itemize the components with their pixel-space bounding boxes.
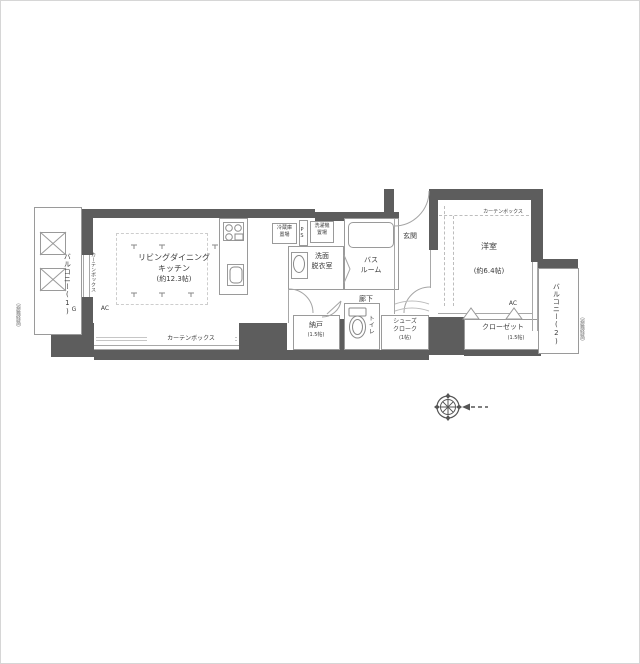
compass-icon xyxy=(434,393,462,421)
entrance-label: 玄関 xyxy=(396,232,424,240)
north-arrow-icon xyxy=(462,404,488,411)
ldk-door-arc xyxy=(289,289,313,313)
sink-bowl-icon xyxy=(230,267,242,283)
washer-label: 洗濯機 xyxy=(310,223,334,229)
shoe-closet-label: シューズ xyxy=(382,318,428,325)
storage-room-size-label: (1.5帖) xyxy=(295,332,337,338)
curtain-box-label: カーテンボックス xyxy=(147,335,235,342)
toilet-icon xyxy=(349,308,366,338)
shoe-closet-size-label: (1帖) xyxy=(388,335,422,341)
refrigerator-label-line2: 置場 xyxy=(272,232,297,238)
closet-folding-door-icon xyxy=(463,308,522,319)
toilet-label: トイレ xyxy=(367,307,374,343)
pipe-space-label: PS xyxy=(299,222,305,244)
escape-route-left-label: （避難経路） xyxy=(15,287,21,343)
bathroom-label-line2: ルーム xyxy=(353,266,389,274)
ldk-label-line2: キッチン xyxy=(119,264,229,274)
closet-label: クローゼット xyxy=(466,323,540,331)
western-room-door-arc xyxy=(404,287,430,313)
curtain-box-vertical-label: カーテンボックス xyxy=(90,239,96,305)
escape-route-right-label: （避難経路） xyxy=(579,301,585,357)
storage-room-label: 納戸 xyxy=(295,321,337,329)
curtain-box-west-label: カーテンボックス xyxy=(475,209,531,215)
ac-label-west: AC xyxy=(505,300,521,307)
ldk-size-label: (約12.3帖) xyxy=(119,275,229,283)
washroom-label-line2: 脱衣室 xyxy=(300,262,344,270)
bath-folding-door-icon xyxy=(344,255,350,283)
western-room-size-label: (約6.4帖) xyxy=(454,267,524,275)
ldk-label: リビングダイニング xyxy=(119,253,229,263)
floor-plan-canvas: リビングダイニング キッチン (約12.3帖) 洋室 (約6.4帖) バス ルー… xyxy=(0,0,640,664)
washer-label-line2: 置場 xyxy=(310,230,334,236)
gas-meter-label: G xyxy=(69,306,79,313)
entrance-step-line xyxy=(395,301,429,311)
closet-size-label: (1.5帖) xyxy=(494,335,538,341)
shoe-closet-label-line2: クローク xyxy=(382,326,428,333)
balcony2-label: バルコニー(2) xyxy=(552,279,560,349)
hallway-label: 廊下 xyxy=(351,295,381,303)
washroom-label: 洗面 xyxy=(300,252,344,260)
stove-burners-icon xyxy=(226,225,243,241)
front-door-arc xyxy=(394,191,429,226)
ac-label-ldk: AC xyxy=(97,305,113,312)
bathroom-label: バス xyxy=(353,256,389,264)
storage-door-arc xyxy=(322,301,341,317)
refrigerator-label: 冷蔵庫 xyxy=(272,225,297,231)
western-room-label: 洋室 xyxy=(458,242,520,252)
